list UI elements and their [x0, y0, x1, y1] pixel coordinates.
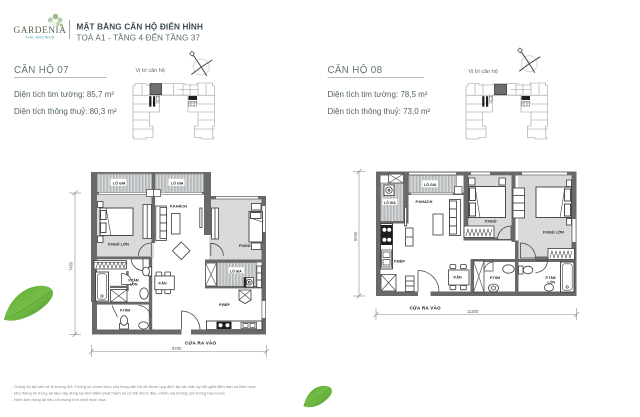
svg-text:P.ĂN: P.ĂN [159, 281, 168, 286]
svg-text:MẶT BẰNG CĂN HỘ ĐIỂN HÌNH: MẶT BẰNG CĂN HỘ ĐIỂN HÌNH [77, 20, 204, 31]
svg-text:Diện tích thông thuỷ: 73,0 m²: Diện tích thông thuỷ: 73,0 m² [328, 107, 431, 116]
svg-text:- Thông số tại bản vẽ là tương: - Thông số tại bản vẽ là tương đối. Thôn… [12, 384, 257, 389]
svg-text:LÔ GIA: LÔ GIA [113, 181, 126, 186]
svg-text:THE ARCADIA: THE ARCADIA [26, 36, 56, 40]
svg-text:CĂN HỘ 07: CĂN HỘ 07 [14, 64, 69, 76]
svg-text:P.TẮM: P.TẮM [490, 275, 500, 280]
svg-text:9700: 9700 [172, 346, 182, 351]
svg-text:GARDENIA: GARDENIA [14, 26, 67, 36]
svg-text:CĂN HỘ 08: CĂN HỘ 08 [328, 64, 383, 76]
svg-text:CỬA RA VÀO: CỬA RA VÀO [410, 305, 441, 311]
svg-text:P.BẾP: P.BẾP [394, 259, 405, 264]
svg-text:P.ĂN: P.ĂN [454, 275, 463, 280]
svg-text:LÔ GIA: LÔ GIA [384, 200, 396, 205]
svg-text:LỚN: LỚN [130, 282, 138, 287]
svg-text:P.BẾP: P.BẾP [219, 302, 230, 307]
svg-text:P.KHÁCH: P.KHÁCH [170, 204, 187, 209]
svg-text:LÔ GIA: LÔ GIA [424, 182, 437, 187]
svg-text:CỬA RA VÀO: CỬA RA VÀO [185, 340, 216, 346]
svg-text:P.NGỦ LỚN: P.NGỦ LỚN [543, 230, 564, 235]
svg-text:LÔ GIA: LÔ GIA [171, 181, 184, 186]
svg-text:11200: 11200 [467, 309, 479, 314]
svg-text:LÔ GIA: LÔ GIA [230, 268, 242, 273]
svg-text:Vị trí căn hộ: Vị trí căn hộ [136, 68, 165, 74]
svg-text:TOÀ A1 - TẦNG 4 ĐẾN TẦNG 37: TOÀ A1 - TẦNG 4 ĐẾN TẦNG 37 [77, 32, 201, 42]
svg-text:P.NGỦ LỚN: P.NGỦ LỚN [108, 242, 129, 247]
svg-text:- Mọi thông tin trong tài liệu: - Mọi thông tin trong tài liệu này đúng … [12, 391, 227, 396]
svg-text:Diện tích tim tường: 85,7 m²: Diện tích tim tường: 85,7 m² [14, 90, 114, 99]
svg-text:Diện tích tim tường: 78,5 m²: Diện tích tim tường: 78,5 m² [328, 90, 428, 99]
svg-text:- Hình ảnh trong tài liệu chỉ: - Hình ảnh trong tài liệu chỉ mang tính … [12, 397, 107, 402]
svg-text:6630: 6630 [353, 231, 358, 241]
svg-text:LỚN: LỚN [548, 280, 556, 285]
svg-text:Diện tích thông thuỷ: 80,3 m²: Diện tích thông thuỷ: 80,3 m² [14, 107, 117, 116]
svg-text:P.NGỦ: P.NGỦ [239, 243, 251, 248]
svg-text:P.NGỦ: P.NGỦ [485, 219, 497, 224]
svg-text:7450: 7450 [69, 261, 74, 271]
svg-text:Vị trí căn hộ: Vị trí căn hộ [469, 69, 498, 75]
svg-text:P.KHÁCH: P.KHÁCH [416, 199, 433, 204]
svg-text:P.TẮM: P.TẮM [546, 275, 556, 280]
svg-text:P.TẮM: P.TẮM [120, 308, 130, 313]
